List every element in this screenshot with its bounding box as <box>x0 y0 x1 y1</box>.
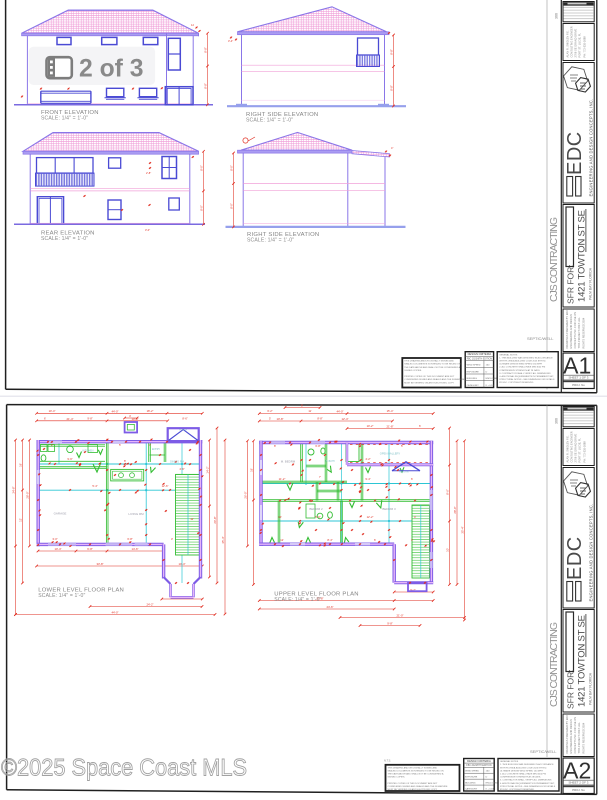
svg-text:ALAN R. SMOLEN P.E.: ALAN R. SMOLEN P.E. <box>566 435 570 462</box>
svg-text:9'-6": 9'-6" <box>67 457 72 461</box>
svg-text:KITCHEN: KITCHEN <box>83 450 94 453</box>
svg-text:COMPRESSIVE STRENGTH AT 28 DAY: COMPRESSIVE STRENGTH AT 28 DAYS. <box>499 369 540 372</box>
svg-text:ALAN R. SMOLEN P.E.: ALAN R. SMOLEN P.E. <box>566 30 570 57</box>
svg-text:PORT ST. LUCIE, FL: PORT ST. LUCIE, FL <box>578 438 582 463</box>
svg-text:M. BEDRM: M. BEDRM <box>281 460 296 464</box>
svg-text:SHEET 2 OF 3: SHEET 2 OF 3 <box>569 781 589 785</box>
svg-text:24'-6": 24'-6" <box>326 605 333 609</box>
svg-text:GARAGE: GARAGE <box>54 512 67 516</box>
svg-text:SCALE: 1/4" = 1'-0": SCALE: 1/4" = 1'-0" <box>274 597 321 603</box>
svg-text:8'-4": 8'-4" <box>327 538 332 542</box>
svg-text:PH: 772-335-1688: PH: 772-335-1688 <box>583 441 587 463</box>
svg-text:FBC 2023/8TH EDITION: FBC 2023/8TH EDITION <box>466 765 492 767</box>
svg-text:THIS DRAWING AND/OR DIGITALLY: THIS DRAWING AND/OR DIGITALLY SIGNED AND <box>404 360 454 363</box>
svg-text:CONCEPTS INC. FOR USE ON: CONCEPTS INC. FOR USE ON <box>573 312 577 349</box>
svg-text:SEALED DOCUMENTS IS INTENDED T: SEALED DOCUMENTS IS INTENDED TO BE RELIE… <box>388 770 445 773</box>
svg-text:2. ALL CONCRETE SHALL HAVE MIN: 2. ALL CONCRETE SHALL HAVE MIN 3000 PSI <box>499 366 545 369</box>
svg-text:8'-6": 8'-6" <box>446 489 450 495</box>
svg-text:28'-0": 28'-0" <box>26 491 30 498</box>
svg-text:EDC: EDC <box>564 536 586 580</box>
svg-text:28'-0": 28'-0" <box>453 506 457 513</box>
svg-text:1. THIS BUILDING WAS DESIGNED: 1. THIS BUILDING WAS DESIGNED IN ACCORDA… <box>500 763 554 766</box>
svg-text:8'-8": 8'-8" <box>390 49 394 55</box>
svg-text:3. CONTRACTOR SHALL VERIFY ALL: 3. CONTRACTOR SHALL VERIFY ALL DIMENSION… <box>499 372 551 375</box>
svg-text:2. ALL CONCRETE SHALL HAVE MIN: 2. ALL CONCRETE SHALL HAVE MIN 3000 PSI <box>500 773 546 776</box>
svg-text:A1: A1 <box>563 353 591 379</box>
svg-text:10'-4": 10'-4" <box>54 547 61 551</box>
svg-text:GENERAL NOTES: GENERAL NOTES <box>499 353 518 356</box>
svg-text:CONSULTING ENGINEER: CONSULTING ENGINEER <box>570 26 574 57</box>
svg-text:PRINTED COPIES OF THIS DOCUMEN: PRINTED COPIES OF THIS DOCUMENT ARE NOT <box>404 375 455 378</box>
svg-text:8'-0": 8'-0" <box>230 165 234 171</box>
svg-text:CONSIDERED SIGNED AND SEALED A: CONSIDERED SIGNED AND SEALED AND THE SIG… <box>404 378 464 381</box>
svg-text:THE DATE ABOVE AND SHALL NOT B: THE DATE ABOVE AND SHALL NOT BE CONSIDER… <box>404 366 460 369</box>
svg-text:DINING RM: DINING RM <box>170 460 184 464</box>
svg-text:4. ADDITIONAL REQUIREMENTS IN: 4. ADDITIONAL REQUIREMENTS IN PERMANENT … <box>499 375 554 378</box>
svg-text:CONSULTING ENGINEER: CONSULTING ENGINEER <box>570 431 574 462</box>
svg-text:14'-6": 14'-6" <box>131 547 138 551</box>
svg-text:15'-4": 15'-4" <box>387 409 394 413</box>
svg-text:21'-8": 21'-8" <box>386 425 393 429</box>
svg-text:BEDRM 2: BEDRM 2 <box>309 507 323 511</box>
svg-text:GENERAL NOTES: GENERAL NOTES <box>500 760 519 763</box>
svg-text:SEPTIC/WELL: SEPTIC/WELL <box>527 336 554 341</box>
svg-text:24'-2": 24'-2" <box>146 603 153 607</box>
svg-text:MUST BE VERIFIED ON ANY ELECTR: MUST BE VERIFIED ON ANY ELECTRONIC COPY <box>404 381 454 384</box>
svg-text:20'-8": 20'-8" <box>213 516 217 523</box>
svg-text:BUILDING: BUILDING <box>467 378 478 380</box>
svg-text:8'-0": 8'-0" <box>200 165 204 171</box>
svg-text:8'-6": 8'-6" <box>182 417 187 421</box>
svg-text:RIGHTS RESERVED 2024: RIGHTS RESERVED 2024 <box>582 317 586 348</box>
svg-text:PROJ. No: PROJ. No <box>572 383 585 387</box>
svg-text:10'-2": 10'-2" <box>367 424 374 428</box>
svg-text:44'-0": 44'-0" <box>336 410 343 414</box>
svg-text:14'-2": 14'-2" <box>206 466 210 473</box>
svg-text:3'-4": 3'-4" <box>228 39 233 43</box>
svg-text:SEPTIC/WELL: SEPTIC/WELL <box>530 749 557 754</box>
svg-text:12'-6": 12'-6" <box>162 484 169 488</box>
svg-text:34'-8": 34'-8" <box>12 486 16 493</box>
svg-text:COMPRESSIVE STRENGTH AT 28 DAY: COMPRESSIVE STRENGTH AT 28 DAYS. <box>500 776 541 779</box>
svg-text:12'-4": 12'-4" <box>341 417 348 421</box>
svg-text:M. BATH: M. BATH <box>325 460 334 463</box>
svg-text:3. CONTRACTOR SHALL VERIFY ALL: 3. CONTRACTOR SHALL VERIFY ALL DIMENSION… <box>500 779 552 782</box>
svg-text:ENGINEERING AND DESIGN CONCEPT: ENGINEERING AND DESIGN CONCEPTS, INC. <box>589 99 594 197</box>
svg-text:16': 16' <box>19 463 23 467</box>
svg-text:SFR FOR:: SFR FOR: <box>566 669 576 709</box>
svg-text:DESIGN CRITERIA: DESIGN CRITERIA <box>468 352 492 356</box>
svg-text:6'-2": 6'-2" <box>267 409 272 413</box>
svg-text:16': 16' <box>250 468 254 472</box>
svg-text:366: 366 <box>555 13 559 19</box>
svg-text:THE DATE ABOVE AND SHALL NOT B: THE DATE ABOVE AND SHALL NOT BE CONSIDER… <box>388 773 444 776</box>
svg-text:SCALE: 1/4" = 1'-0": SCALE: 1/4" = 1'-0" <box>38 593 85 599</box>
svg-text:10': 10' <box>446 548 450 552</box>
svg-text:PORCH: PORCH <box>179 430 187 432</box>
svg-text:WIND SPEED: WIND SPEED <box>465 771 479 773</box>
svg-text:11': 11' <box>308 409 312 413</box>
svg-text:ULTIMATE DESIGN WIND SPEED 160: ULTIMATE DESIGN WIND SPEED 160 MPH <box>500 769 543 772</box>
svg-text:6'-8": 6'-8" <box>127 537 132 541</box>
svg-text:WITH FLORIDA BUILDING CODE 202: WITH FLORIDA BUILDING CODE 2023 8TH ED. <box>499 360 546 363</box>
svg-text:WIND SPEED: WIND SPEED <box>467 365 481 367</box>
svg-text:ULTIMATE DESIGN WIND SPEED 160: ULTIMATE DESIGN WIND SPEED 160 MPH <box>499 363 542 366</box>
svg-text:6'-8": 6'-8" <box>315 444 320 448</box>
svg-text:THIS DRAWING AND/OR DIGITALLY: THIS DRAWING AND/OR DIGITALLY SIGNED AND <box>388 766 438 769</box>
svg-text:9'-8": 9'-8" <box>387 622 393 626</box>
svg-text:DESIGN CRITERIA: DESIGN CRITERIA <box>467 759 491 763</box>
svg-text:PALM BAY FLORIDA: PALM BAY FLORIDA <box>588 267 592 300</box>
svg-text:CONCEPTS INC. FOR USE ON: CONCEPTS INC. FOR USE ON <box>573 717 577 754</box>
svg-text:26'-0": 26'-0" <box>244 491 248 498</box>
svg-text:11'-2": 11'-2" <box>279 477 286 481</box>
svg-text:THIS PROJECT ONLY. ALL: THIS PROJECT ONLY. ALL <box>577 722 581 754</box>
svg-text:CATEGORY: CATEGORY <box>467 384 480 387</box>
svg-text:8'-0": 8'-0" <box>200 205 204 211</box>
svg-text:BY EDC. COPYRIGHT RESERVED: BY EDC. COPYRIGHT RESERVED <box>499 382 534 384</box>
svg-text:EXPOSURE: EXPOSURE <box>467 371 480 373</box>
svg-text:CATEGORY: CATEGORY <box>465 787 478 790</box>
svg-text:EXPOSURE: EXPOSURE <box>465 777 478 779</box>
svg-text:SFR FOR:: SFR FOR: <box>566 264 576 304</box>
svg-text:PH: 772-335-1688: PH: 772-335-1688 <box>583 36 587 58</box>
svg-text:ENGINEERING AND DESIGN: ENGINEERING AND DESIGN <box>569 719 573 753</box>
svg-text:12'-2": 12'-2" <box>367 515 374 519</box>
svg-text:THIS PROJECT ONLY. ALL: THIS PROJECT ONLY. ALL <box>577 317 581 349</box>
svg-text:SIGNED COPIES.: SIGNED COPIES. <box>388 777 406 779</box>
svg-text:SIGNED COPIES.: SIGNED COPIES. <box>404 370 422 372</box>
svg-text:SHEET 1 OF 3: SHEET 1 OF 3 <box>569 376 589 380</box>
svg-text:OPEN BALLERY: OPEN BALLERY <box>380 452 401 456</box>
svg-text:N.T.S.: N.T.S. <box>384 759 391 763</box>
svg-text:FBC 2023/8TH EDITION: FBC 2023/8TH EDITION <box>467 358 493 360</box>
svg-text:8'-8": 8'-8" <box>204 83 208 89</box>
svg-text:21'-0": 21'-0" <box>396 614 403 618</box>
svg-text:MUST BE VERIFIED ON ANY ELECTR: MUST BE VERIFIED ON ANY ELECTRONIC COPY <box>388 788 438 791</box>
svg-text:©2025 Space Coast MLS: ©2025 Space Coast MLS <box>1 755 247 782</box>
svg-text:2 of 3: 2 of 3 <box>79 54 144 82</box>
svg-text:II + 0.18: II + 0.18 <box>486 788 495 790</box>
svg-text:SCALE: 1/4" = 1'-0": SCALE: 1/4" = 1'-0" <box>246 118 293 124</box>
svg-text:4": 4" <box>391 146 393 150</box>
svg-text:4'-6": 4'-6" <box>179 467 184 471</box>
svg-text:8'-8": 8'-8" <box>390 85 394 91</box>
svg-text:RIGHTS RESERVED 2024: RIGHTS RESERVED 2024 <box>582 722 586 753</box>
svg-text:II + 0.18: II + 0.18 <box>486 385 495 387</box>
svg-text:PALM BAY FLORIDA: PALM BAY FLORIDA <box>588 672 592 705</box>
svg-text:DRAWINGS PREPARED BY EDC: DRAWINGS PREPARED BY EDC <box>565 715 569 754</box>
svg-text:BUILDING: BUILDING <box>465 782 476 784</box>
svg-text:BEDRM 3: BEDRM 3 <box>382 507 396 511</box>
svg-text:STRUCTURAL NOTES - SEE DRAWING: STRUCTURAL NOTES - SEE DRAWINGS FOR DETA… <box>500 785 556 788</box>
svg-text:6'-8": 6'-8" <box>87 547 93 551</box>
svg-text:ENTRY: ENTRY <box>152 448 160 451</box>
svg-text:2'-8": 2'-8" <box>146 171 151 175</box>
svg-text:5'-6": 5'-6" <box>315 515 320 519</box>
svg-text:12': 12' <box>280 538 284 542</box>
svg-text:CJS CONTRACTING: CJS CONTRACTING <box>548 622 560 707</box>
svg-text:8'-0": 8'-0" <box>230 203 234 209</box>
svg-text:CJS CONTRACTING: CJS CONTRACTING <box>548 217 560 302</box>
svg-text:10'-4": 10'-4" <box>49 409 56 413</box>
svg-text:EDC: EDC <box>564 131 586 175</box>
svg-text:21'-4": 21'-4" <box>66 417 73 421</box>
svg-text:ENCLOSED: ENCLOSED <box>486 782 498 784</box>
svg-text:8'-8": 8'-8" <box>204 47 208 53</box>
svg-text:ENGINEERING AND DESIGN: ENGINEERING AND DESIGN <box>569 314 573 348</box>
svg-text:3'-0": 3'-0" <box>52 537 57 541</box>
svg-text:PRINTED COPIES OF THIS DOCUMEN: PRINTED COPIES OF THIS DOCUMENT ARE NOT <box>388 782 439 785</box>
svg-text:DRAWINGS PREPARED BY EDC: DRAWINGS PREPARED BY EDC <box>565 310 569 349</box>
svg-text:1. THIS BUILDING WAS DESIGNED: 1. THIS BUILDING WAS DESIGNED IN ACCORDA… <box>499 356 553 359</box>
svg-text:ENGINEERING AND DESIGN CONCEPT: ENGINEERING AND DESIGN CONCEPTS, INC. <box>589 504 594 602</box>
svg-text:2706 SE GRAND DRIVE: 2706 SE GRAND DRIVE <box>574 29 578 58</box>
svg-text:366: 366 <box>555 418 559 424</box>
svg-text:SCALE: 1/4" = 1'-0": SCALE: 1/4" = 1'-0" <box>41 236 88 242</box>
svg-text:9'-8": 9'-8" <box>87 417 92 421</box>
svg-text:BALCON: BALCON <box>400 471 409 474</box>
svg-text:10': 10' <box>278 515 282 519</box>
svg-text:10'-8": 10'-8" <box>276 417 283 421</box>
svg-text:SCALE: 1/4" = 1'-0": SCALE: 1/4" = 1'-0" <box>247 238 294 244</box>
svg-text:12': 12' <box>19 518 23 522</box>
svg-text:33'-8": 33'-8" <box>96 562 103 566</box>
svg-text:5'-4": 5'-4" <box>92 484 97 488</box>
svg-text:WITH FLORIDA BUILDING CODE 202: WITH FLORIDA BUILDING CODE 2023 8TH ED. <box>500 766 547 769</box>
svg-text:SEALED DOCUMENTS IS INTENDED T: SEALED DOCUMENTS IS INTENDED TO BE RELIE… <box>404 363 461 366</box>
svg-text:35'-4": 35'-4" <box>461 526 465 533</box>
svg-text:PORT ST. LUCIE, FL: PORT ST. LUCIE, FL <box>578 33 582 58</box>
svg-text:11': 11' <box>190 517 194 521</box>
svg-text:CONSIDERED SIGNED AND SEALED A: CONSIDERED SIGNED AND SEALED AND THE SIG… <box>388 785 448 788</box>
svg-text:4. ADDITIONAL REQUIREMENTS IN: 4. ADDITIONAL REQUIREMENTS IN PERMANENT … <box>500 782 555 785</box>
svg-text:A2: A2 <box>563 758 591 784</box>
svg-text:44'-0": 44'-0" <box>111 409 118 413</box>
svg-text:STRUCTURAL NOTES - SEE DRAWING: STRUCTURAL NOTES - SEE DRAWINGS FOR DETA… <box>499 378 555 381</box>
svg-text:LIVING RM: LIVING RM <box>128 512 144 516</box>
svg-text:PROJ. No: PROJ. No <box>572 788 585 792</box>
svg-text:9'-4": 9'-4" <box>365 477 370 481</box>
svg-text:8'-8": 8'-8" <box>317 417 322 421</box>
svg-text:2706 SE GRAND DRIVE: 2706 SE GRAND DRIVE <box>574 434 578 463</box>
svg-text:ENCLOSED: ENCLOSED <box>486 378 498 380</box>
svg-text:SCALE: 1/4" = 1'-0": SCALE: 1/4" = 1'-0" <box>41 116 88 122</box>
svg-text:44'-0": 44'-0" <box>111 611 118 615</box>
svg-text:4'-2": 4'-2" <box>365 457 370 461</box>
svg-text:35'-4": 35'-4" <box>221 536 225 543</box>
svg-text:BY EDC. COPYRIGHT RESERVED: BY EDC. COPYRIGHT RESERVED <box>500 789 535 791</box>
svg-text:18'-2": 18'-2" <box>147 409 154 413</box>
svg-text:3'-0": 3'-0" <box>145 228 150 232</box>
